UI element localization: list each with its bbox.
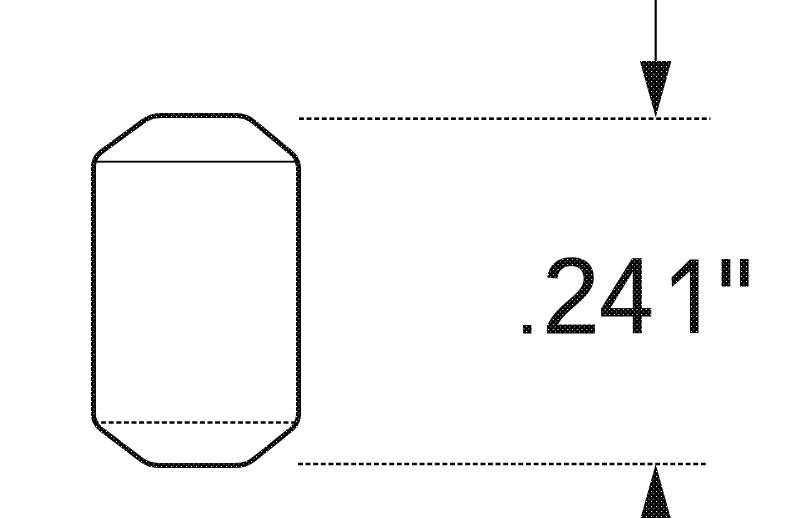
svg-text:4: 4 (599, 236, 653, 356)
svg-text:2: 2 (542, 237, 599, 356)
